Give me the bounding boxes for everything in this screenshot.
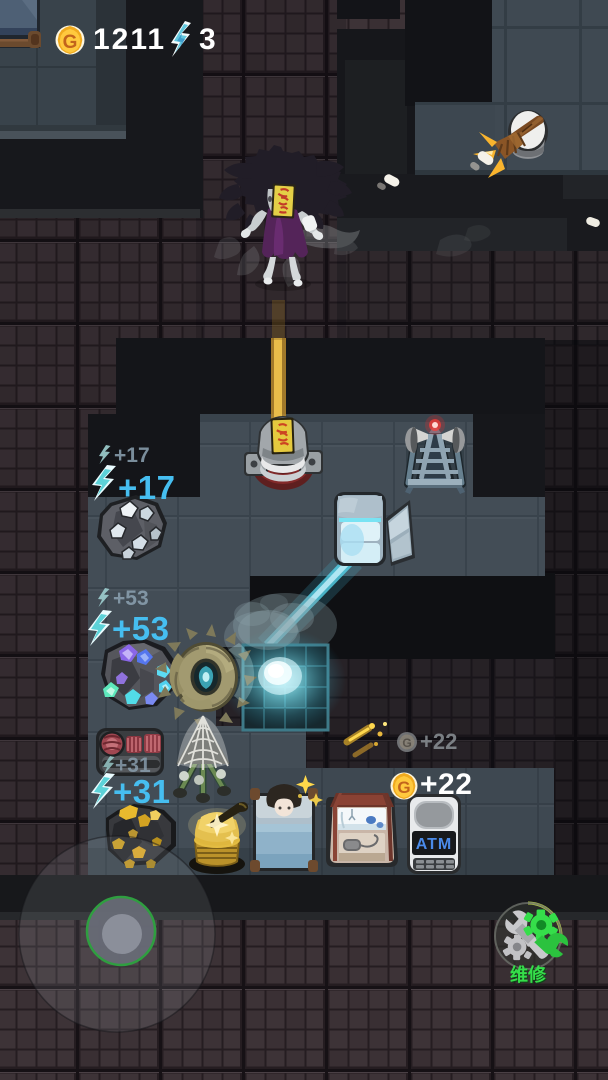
svg-text:G: G	[63, 32, 78, 53]
svg-text:G: G	[397, 778, 410, 797]
svg-text:1211: 1211	[93, 23, 166, 56]
svg-text:+17: +17	[118, 469, 175, 506]
svg-text:+31: +31	[113, 773, 170, 810]
svg-text:+53: +53	[112, 610, 169, 647]
svg-text:+53: +53	[113, 587, 149, 610]
svg-text:3: 3	[199, 23, 216, 56]
svg-text:ATM: ATM	[416, 836, 452, 853]
svg-text:维修: 维修	[510, 964, 547, 985]
svg-text:G: G	[402, 736, 411, 750]
svg-text:+22: +22	[420, 768, 472, 801]
svg-text:+22: +22	[420, 729, 457, 754]
svg-text:+17: +17	[114, 444, 150, 467]
